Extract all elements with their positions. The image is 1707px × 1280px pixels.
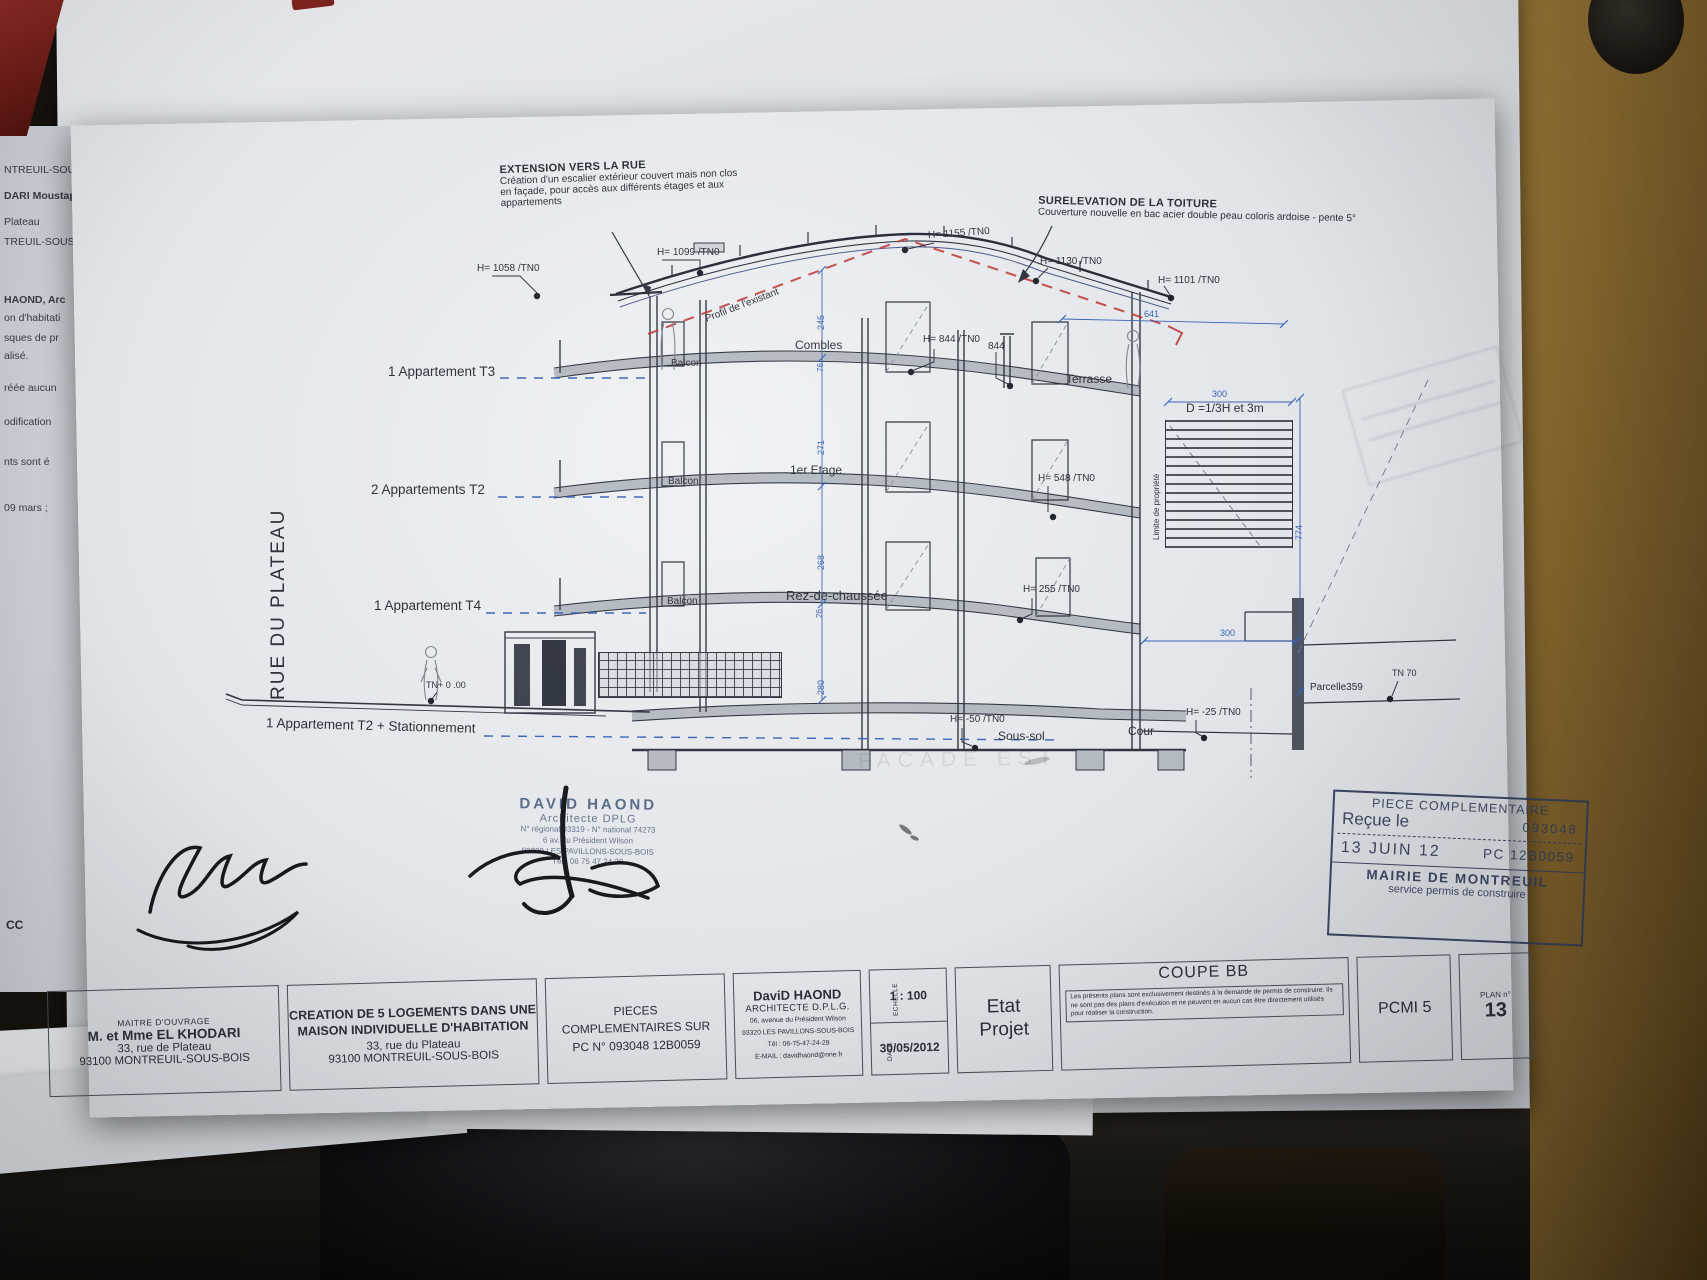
signatures [0, 0, 1707, 1280]
